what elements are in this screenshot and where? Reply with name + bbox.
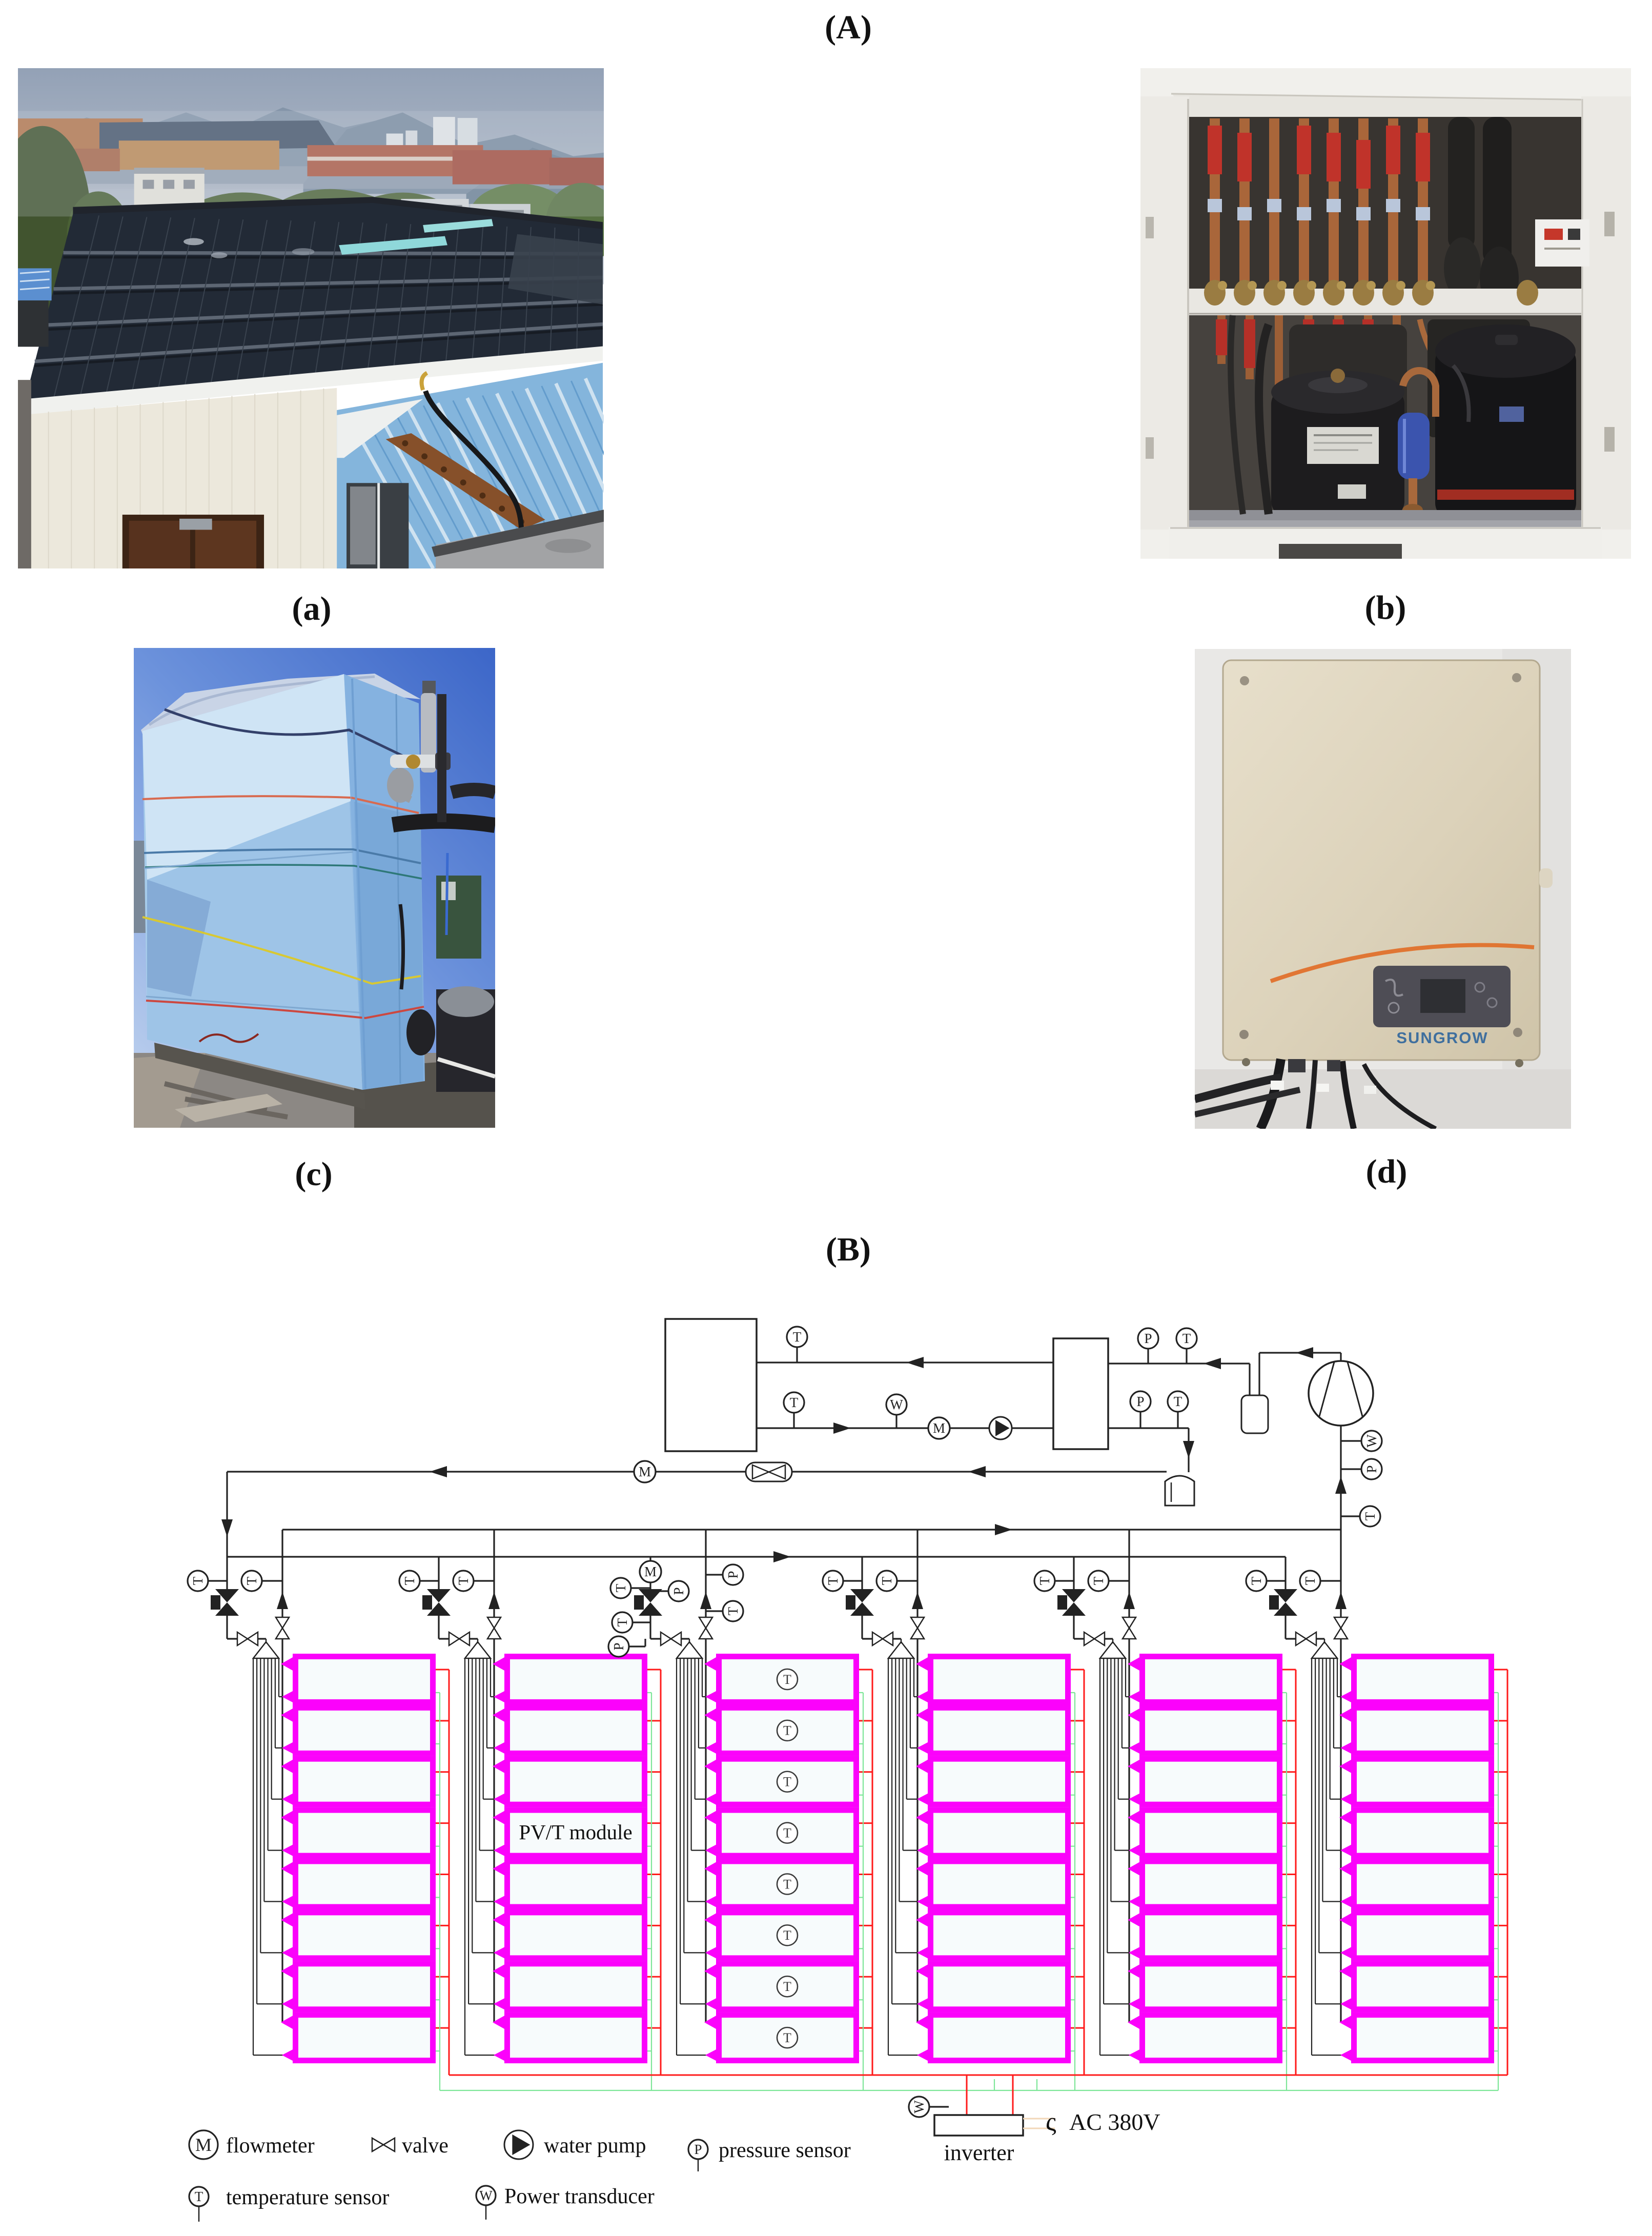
svg-text:M: M: [195, 2135, 212, 2155]
svg-text:M: M: [644, 1564, 657, 1579]
svg-text:T: T: [1174, 1394, 1182, 1409]
svg-text:T: T: [1249, 1576, 1264, 1585]
svg-text:T: T: [793, 1329, 802, 1345]
svg-text:T: T: [783, 1979, 791, 1994]
svg-text:flowmeter: flowmeter: [226, 2134, 315, 2158]
svg-text:T: T: [783, 1928, 791, 1943]
svg-text:T: T: [825, 1576, 841, 1585]
svg-text:M: M: [639, 1464, 651, 1479]
svg-text:P: P: [1136, 1394, 1144, 1409]
svg-text:T: T: [1037, 1576, 1052, 1585]
svg-text:T: T: [783, 1672, 791, 1687]
svg-text:P: P: [1364, 1465, 1379, 1473]
svg-text:AC 380V: AC 380V: [1069, 2109, 1160, 2135]
svg-text:T: T: [195, 2189, 203, 2204]
svg-text:P: P: [1144, 1331, 1152, 1346]
svg-text:T: T: [1091, 1576, 1106, 1585]
svg-text:P: P: [694, 2142, 702, 2157]
svg-text:T: T: [244, 1576, 259, 1585]
svg-text:T: T: [783, 1877, 791, 1892]
svg-text:T: T: [725, 1607, 741, 1615]
svg-text:PV/T module: PV/T module: [519, 1820, 632, 1844]
svg-text:W: W: [1364, 1434, 1379, 1448]
svg-text:P: P: [611, 1642, 626, 1650]
svg-text:T: T: [615, 1618, 630, 1627]
svg-text:valve: valve: [402, 2134, 448, 2158]
svg-text:P: P: [725, 1571, 741, 1578]
svg-text:M: M: [933, 1420, 945, 1436]
svg-text:ς: ς: [1046, 2107, 1056, 2137]
svg-text:W: W: [911, 2100, 927, 2113]
svg-text:P: P: [671, 1587, 686, 1595]
svg-text:water pump: water pump: [544, 2134, 646, 2158]
svg-text:T: T: [402, 1576, 417, 1585]
svg-text:W: W: [890, 1397, 903, 1412]
svg-text:inverter: inverter: [944, 2140, 1014, 2165]
svg-text:temperature sensor: temperature sensor: [226, 2186, 389, 2209]
svg-text:W: W: [479, 2188, 493, 2203]
svg-text:T: T: [783, 2030, 791, 2045]
svg-text:T: T: [790, 1395, 799, 1410]
svg-text:T: T: [1302, 1576, 1318, 1585]
svg-text:T: T: [613, 1583, 628, 1592]
svg-text:T: T: [190, 1576, 206, 1585]
svg-text:Power transducer: Power transducer: [504, 2185, 655, 2208]
svg-text:T: T: [1362, 1512, 1378, 1520]
svg-text:SUNGROW: SUNGROW: [1396, 1029, 1488, 1047]
svg-text:T: T: [456, 1576, 471, 1585]
svg-text:T: T: [879, 1576, 894, 1585]
svg-text:T: T: [783, 1723, 791, 1738]
svg-text:T: T: [1182, 1331, 1191, 1346]
svg-text:T: T: [783, 1775, 791, 1790]
svg-text:pressure sensor: pressure sensor: [719, 2139, 851, 2162]
svg-text:T: T: [783, 1825, 791, 1840]
